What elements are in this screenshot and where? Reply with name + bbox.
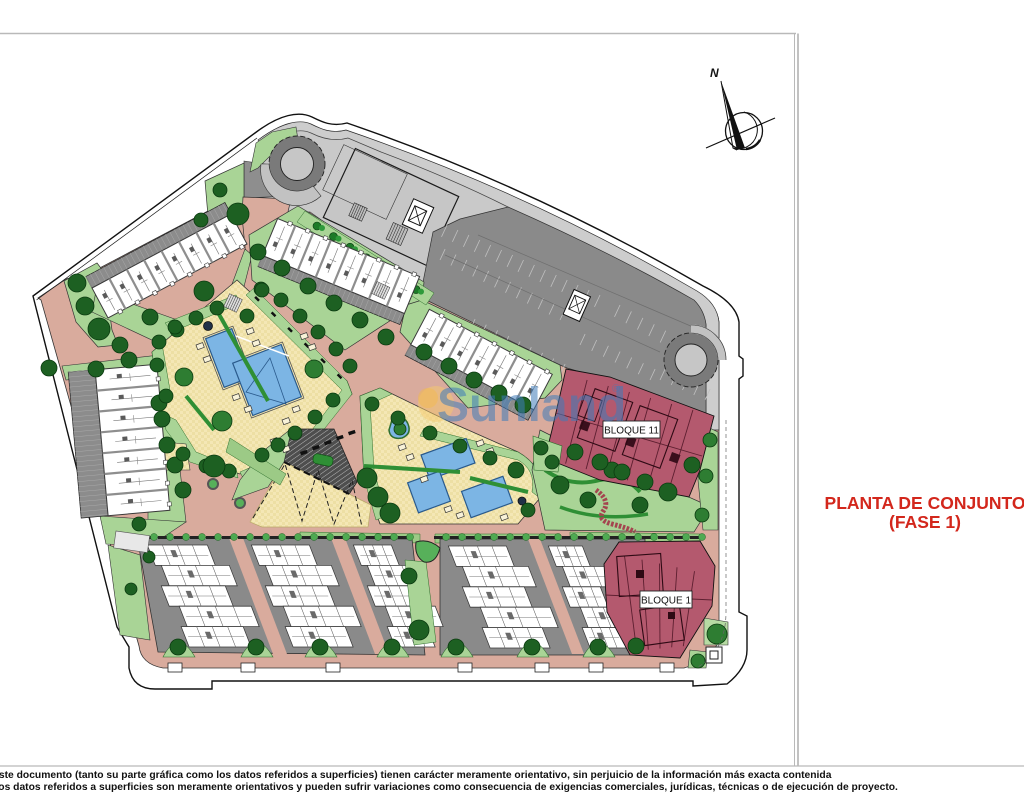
svg-text:Sunland: Sunland bbox=[437, 379, 626, 432]
svg-text:®: ® bbox=[612, 383, 620, 395]
svg-text:N: N bbox=[710, 66, 719, 80]
svg-text:(FASE 1): (FASE 1) bbox=[889, 512, 961, 532]
svg-text:BLOQUE 1: BLOQUE 1 bbox=[641, 596, 691, 607]
svg-text:PLANTA DE CONJUNTO: PLANTA DE CONJUNTO bbox=[825, 493, 1024, 513]
svg-text:Los datos referidos a superfic: Los datos referidos a superficies son me… bbox=[0, 782, 898, 793]
svg-text:Este documento (tanto su parte: Este documento (tanto su parte gráfica c… bbox=[0, 770, 832, 781]
